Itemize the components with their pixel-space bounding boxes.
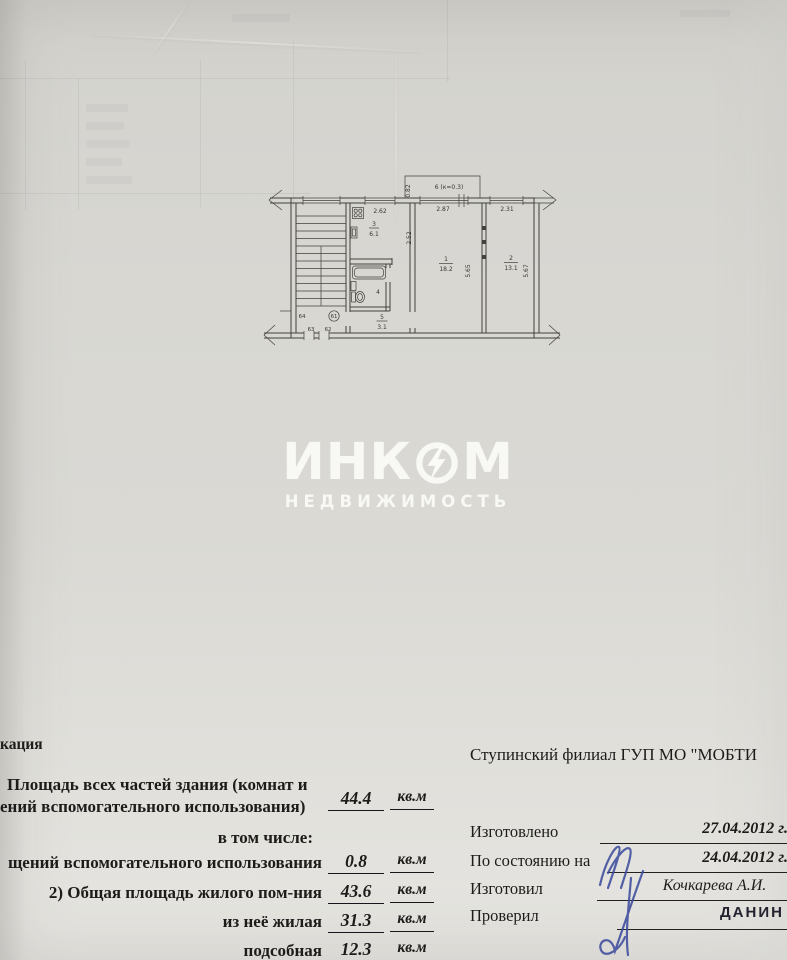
- kitchen-sink-icon: [351, 227, 357, 238]
- dim-room2-side: 5.67: [523, 264, 530, 278]
- including-label: в том числе:: [218, 828, 313, 848]
- incom-watermark: ИНК М НЕДВИЖИМОСТЬ: [276, 438, 520, 511]
- total-area-unit: кв.м: [390, 788, 434, 810]
- as-of-label: По состоянию на: [470, 851, 590, 871]
- watermark-brand-right: М: [462, 438, 514, 488]
- author-label: Изготовил: [470, 879, 543, 899]
- incom-logo-icon: [415, 441, 459, 485]
- handwritten-signatures: [575, 833, 700, 960]
- checker-label: Проверил: [470, 906, 539, 926]
- living-area-label: из неё жилая: [223, 912, 322, 932]
- staircase: [280, 198, 350, 340]
- aux-area-label: щений вспомогательного использования: [8, 853, 322, 873]
- living-total-unit: кв.м: [390, 881, 434, 903]
- living-area-value: 31.3: [328, 910, 384, 933]
- dim-kitchen-side: 2.52: [406, 231, 413, 245]
- dim-room2-top: 2.31: [500, 206, 514, 213]
- utility-area-value: 12.3: [328, 939, 384, 960]
- row1-line2: ений вспомогательного использования): [0, 796, 308, 818]
- hall-number: 5: [380, 314, 384, 321]
- floor-plan: 2.62 2.87 2.31 2.52 5.65 5.67 0.82 6 (к=…: [262, 168, 562, 363]
- room1-number: 1: [444, 256, 448, 263]
- dim-room1-top: 2.87: [436, 206, 450, 213]
- bti-branch-title: Ступинский филиал ГУП МО "МОБТИ: [470, 745, 787, 765]
- apartment-64-label: 64: [299, 314, 306, 320]
- living-total-label: 2) Общая площадь жилого пом-ния: [49, 883, 322, 903]
- bath-sink-icon: [351, 282, 356, 291]
- row1-line1: Площадь всех частей здания (комнат и: [0, 774, 308, 796]
- kitchen-area: 6.1: [369, 231, 379, 238]
- dim-room1-side: 5.65: [465, 264, 472, 278]
- utility-area-unit: кв.м: [390, 939, 434, 960]
- living-total-value: 43.6: [328, 881, 384, 904]
- aux-area-value: 0.8: [328, 851, 384, 874]
- utility-area-label: подсобная: [244, 941, 322, 960]
- windows: [303, 194, 523, 207]
- dim-balcony-width: 0.82: [405, 184, 412, 198]
- explication-heading-fragment: кация: [0, 736, 43, 754]
- room1-area: 18.2: [439, 266, 453, 273]
- total-area-value: 44.4: [328, 788, 384, 811]
- scanned-document-page: 2.62 2.87 2.31 2.52 5.65 5.67 0.82 6 (к=…: [0, 0, 787, 960]
- bathtub-icon: [353, 266, 386, 279]
- watermark-subtitle: НЕДВИЖИМОСТЬ: [276, 492, 520, 511]
- explication-row1-label: Площадь всех частей здания (комнат и ени…: [0, 774, 308, 818]
- bathroom-number: 4: [376, 289, 380, 296]
- balcony-label: 6 (к=0.3): [435, 184, 464, 191]
- hall-area: 3.1: [377, 324, 387, 331]
- dim-kitchen-top: 2.62: [373, 208, 387, 215]
- watermark-brand-left: ИНК: [282, 438, 412, 488]
- toilet-icon: [352, 292, 365, 303]
- aux-area-unit: кв.м: [390, 851, 434, 873]
- made-label: Изготовлено: [470, 822, 558, 842]
- room2-number: 2: [509, 255, 513, 262]
- apartment-63-label: 63: [308, 327, 315, 333]
- room2-area: 13.1: [504, 265, 518, 272]
- checker-stamp: ДАНИН Е: [720, 904, 787, 921]
- apartment-61-label: 61: [331, 314, 338, 320]
- apartment-62-label: 62: [325, 327, 332, 333]
- kitchen-number: 3: [372, 221, 376, 228]
- stove-icon: [353, 208, 364, 219]
- living-area-unit: кв.м: [390, 910, 434, 932]
